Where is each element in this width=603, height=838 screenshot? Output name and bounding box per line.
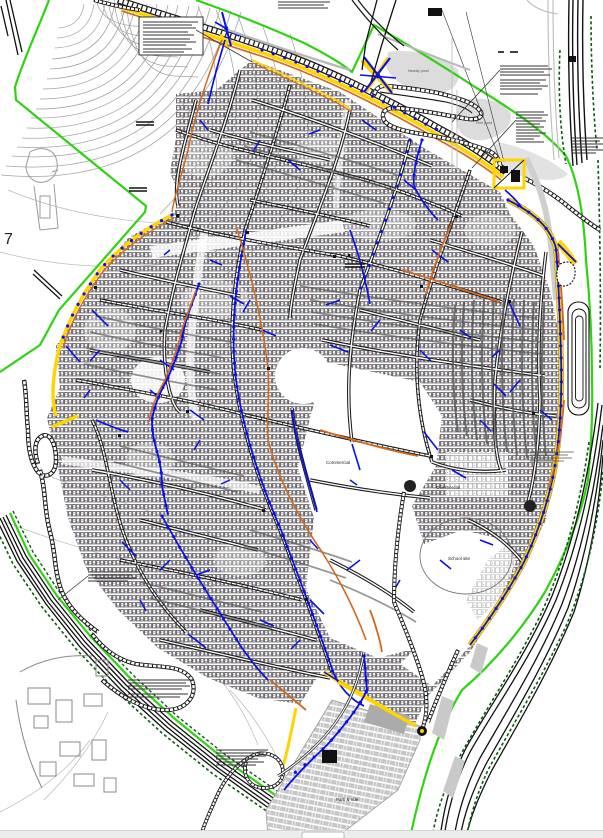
- svg-text:Nearby pond: Nearby pond: [408, 69, 429, 73]
- svg-text:Commercial: Commercial: [436, 485, 460, 490]
- svg-text:Pine pond: Pine pond: [476, 121, 492, 125]
- svg-text:Commercial: Commercial: [326, 460, 350, 465]
- svg-text:Park & ride: Park & ride: [336, 797, 359, 802]
- svg-text:7: 7: [4, 231, 13, 248]
- svg-text:School site: School site: [448, 556, 471, 561]
